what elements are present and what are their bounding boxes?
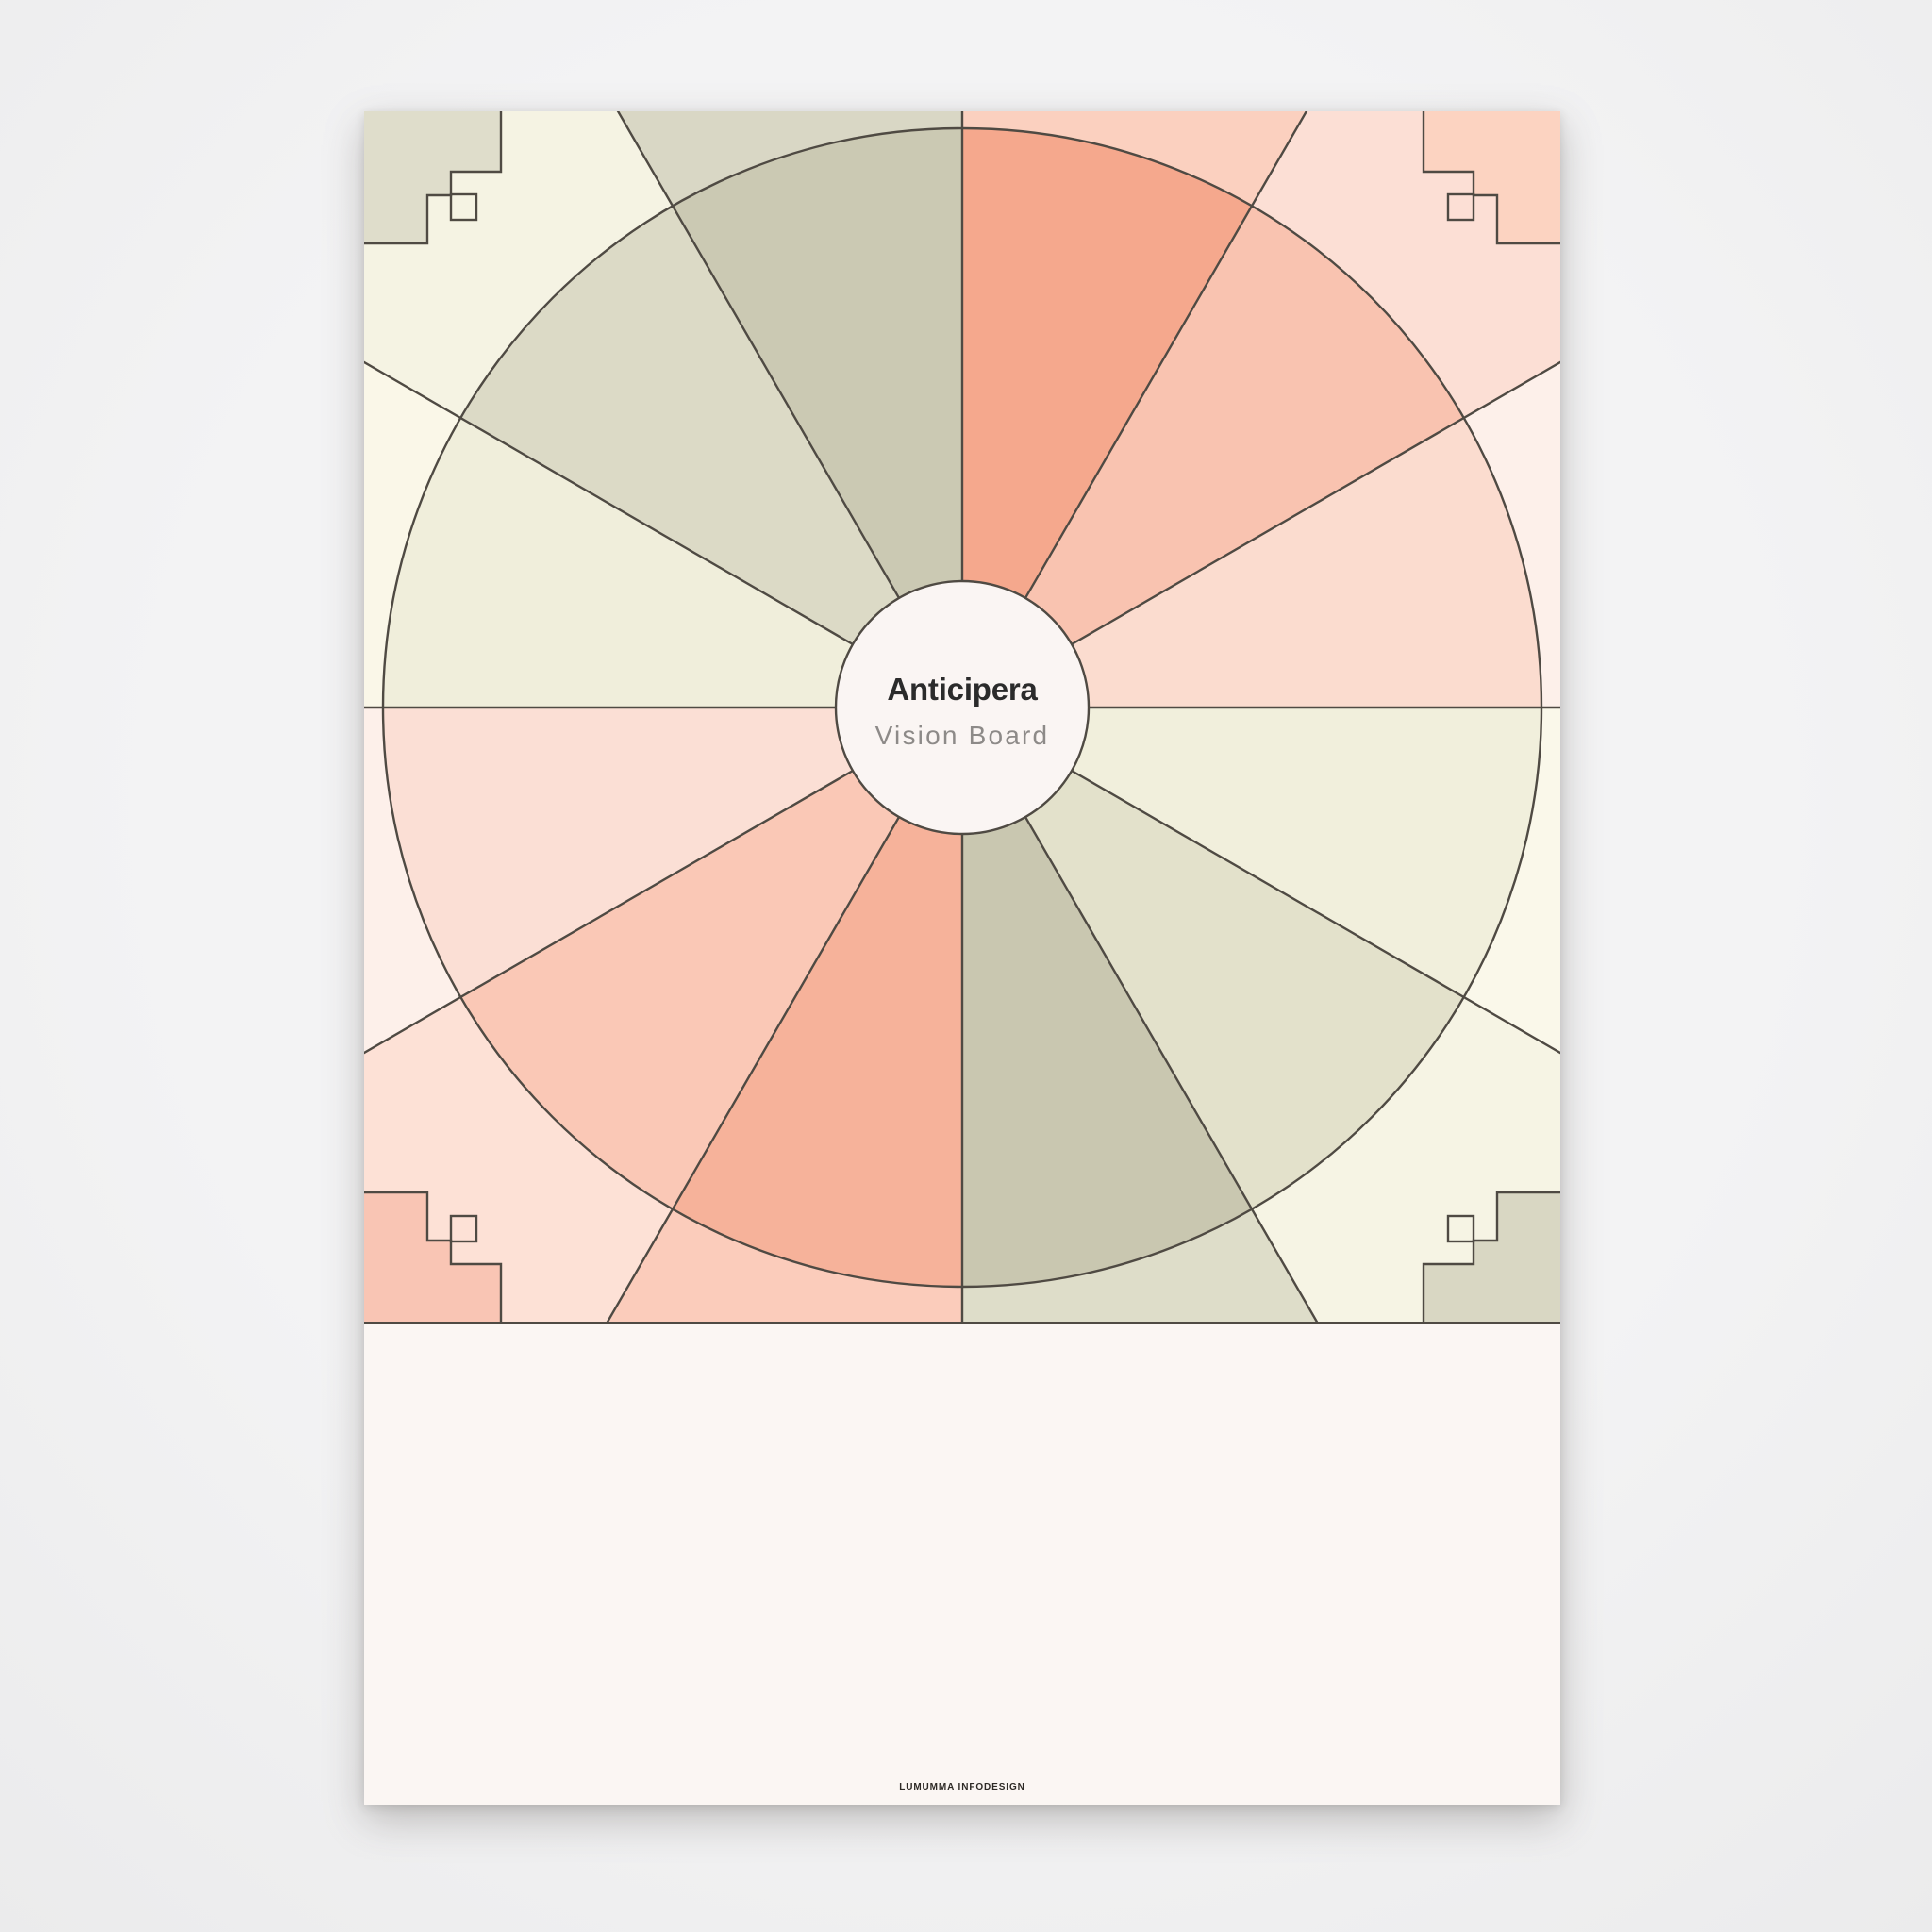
- wheel-center-label: Anticipera Vision Board: [875, 672, 1050, 751]
- poster: Anticipera Vision Board LUMUMMA INFODESI…: [364, 111, 1560, 1805]
- page-background: Anticipera Vision Board LUMUMMA INFODESI…: [0, 0, 1932, 1932]
- poster-subtitle: Vision Board: [875, 722, 1050, 751]
- poster-title: Anticipera: [875, 672, 1050, 708]
- footer-credit: LUMUMMA INFODESIGN: [364, 1782, 1560, 1792]
